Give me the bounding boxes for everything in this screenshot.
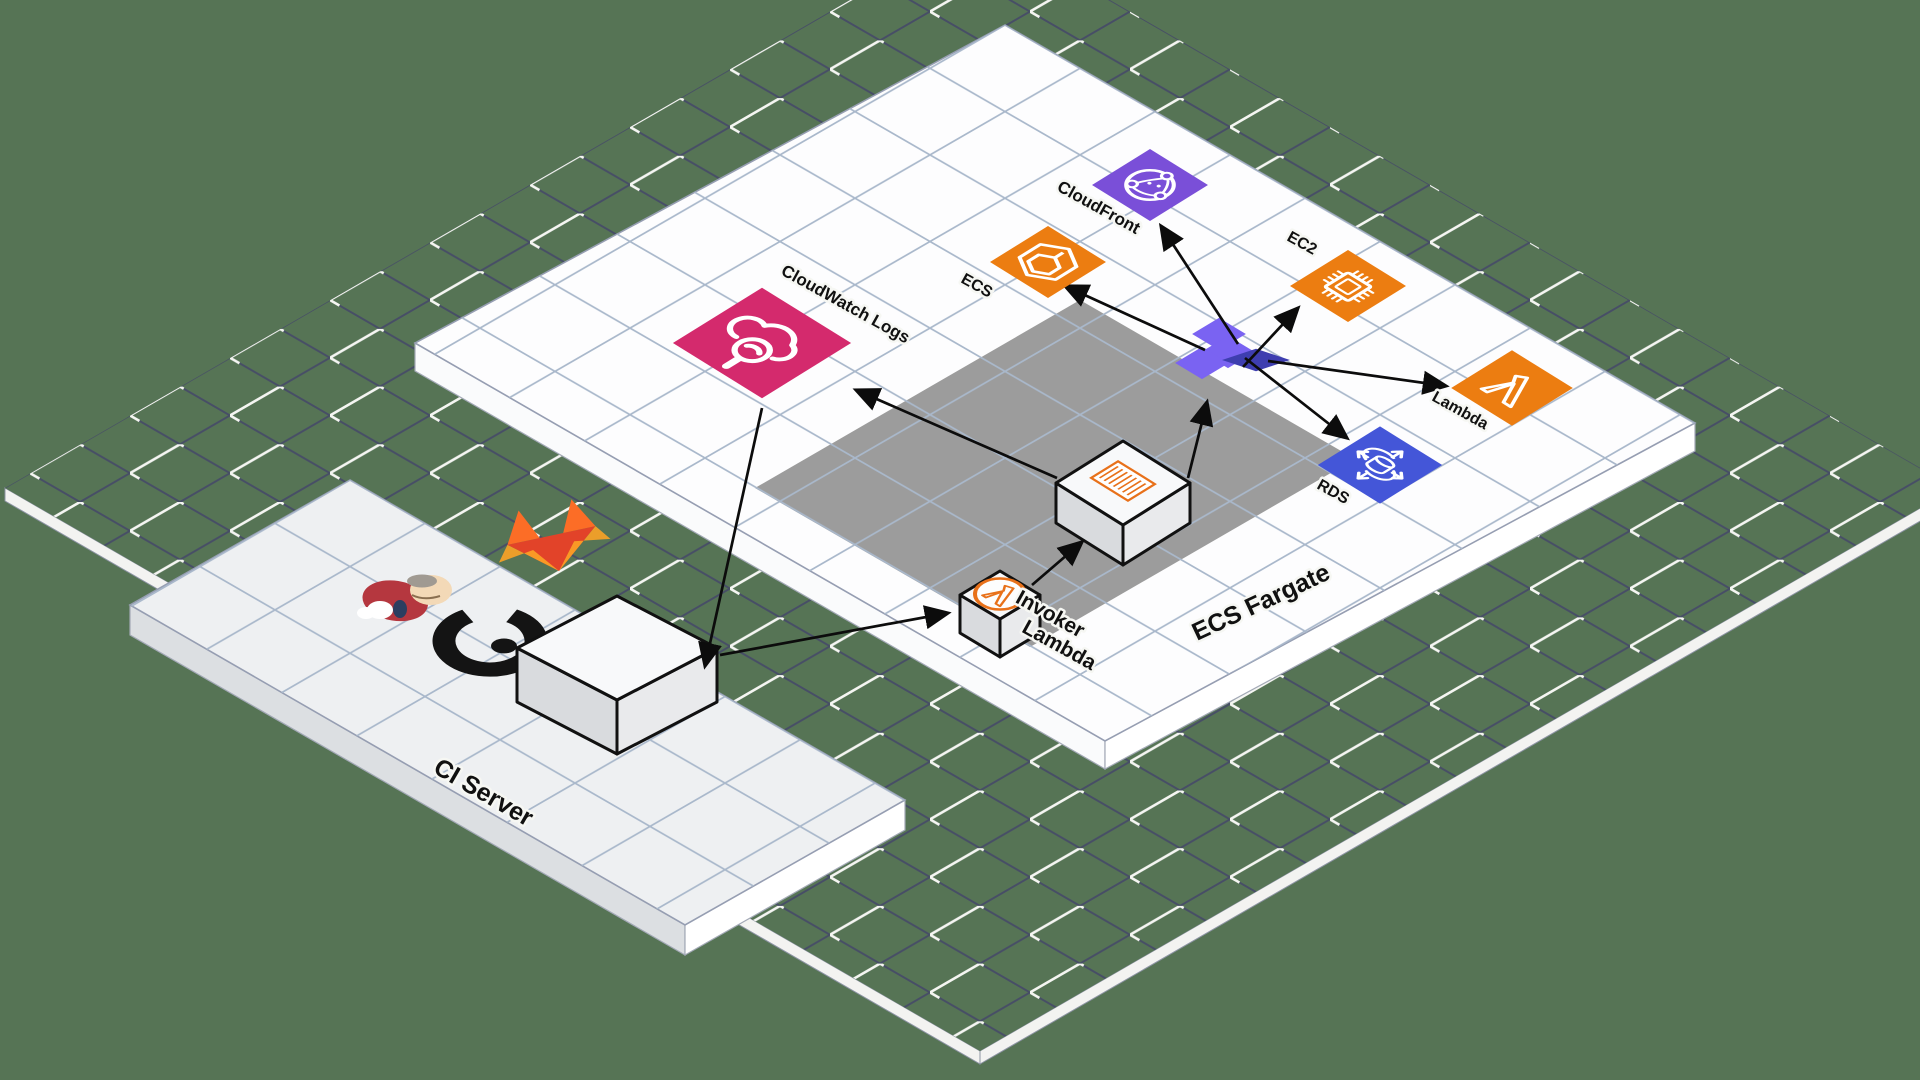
diagram-canvas: CloudWatch Logs ECS CloudFront EC2 Lambd… [0, 0, 1920, 1080]
isometric-architecture-diagram: CloudWatch Logs ECS CloudFront EC2 Lambd… [0, 0, 1920, 1080]
